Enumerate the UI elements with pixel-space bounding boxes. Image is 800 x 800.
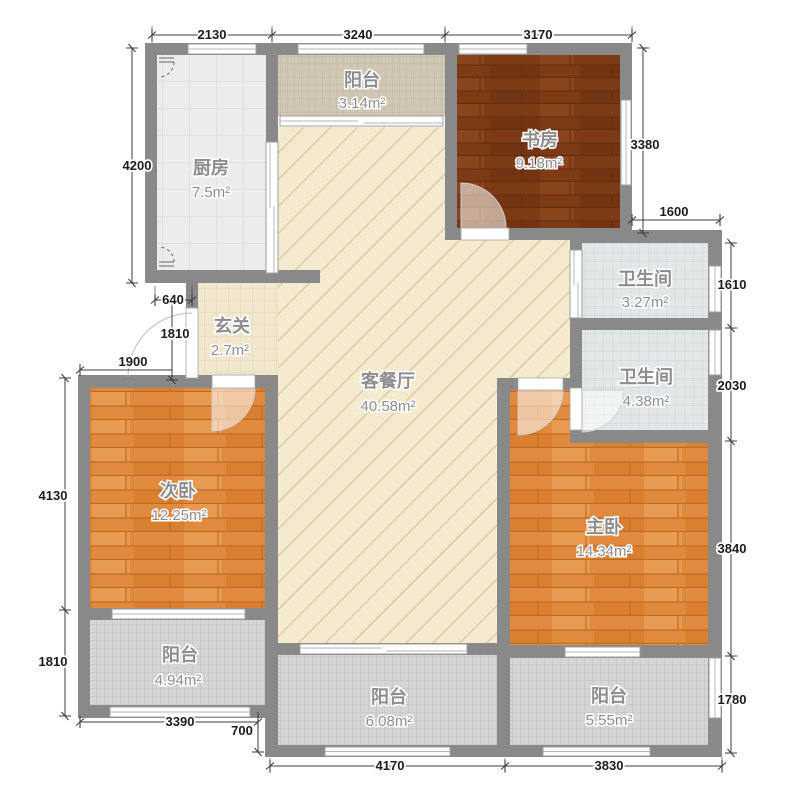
room-label-bathroom-2: 卫生间 (619, 366, 673, 387)
wall-segment (570, 230, 722, 243)
wall-segment (145, 270, 320, 283)
room-area-kitchen: 7.5m² (192, 184, 230, 201)
window (709, 330, 721, 375)
window (112, 609, 245, 619)
room-label-balcony-br: 阳台 (591, 685, 627, 706)
window (621, 100, 631, 185)
dim-left-1: 640 (162, 292, 184, 307)
room-label-living-dining: 客餐厅 (361, 370, 415, 391)
room-area-balcony-bl: 4.94m² (155, 672, 202, 689)
wall-segment (78, 388, 90, 620)
room-area-bathroom-2: 4.38m² (623, 393, 670, 410)
room-area-balcony-bc: 6.08m² (366, 713, 413, 730)
sliding-window (280, 116, 443, 126)
wall-segment (582, 318, 708, 330)
dim-left-0: 4200 (123, 158, 152, 173)
room-area-entrance-hall: 2.7m² (211, 342, 249, 359)
dim-left-5: 1810 (39, 654, 68, 669)
room-label-bathroom-1: 卫生间 (618, 268, 672, 289)
room-area-bedroom-master: 14.34m² (576, 543, 631, 560)
sliding-door (300, 644, 467, 654)
room-area-balcony-br: 5.55m² (586, 712, 633, 729)
window (298, 44, 424, 54)
room-area-bedroom-second: 12.25m² (151, 507, 206, 524)
dim-bottom-3: 3830 (595, 758, 624, 773)
dim-bottom-0: 3390 (166, 714, 195, 729)
floor-plan-svg: 2130 3240 3170 4200 640 1810 1900 4130 1… (0, 0, 800, 800)
window (188, 44, 256, 54)
wall-segment (266, 55, 278, 147)
room-label-balcony-bc: 阳台 (371, 686, 407, 707)
window (459, 44, 527, 54)
sliding-door (266, 142, 278, 273)
dim-right-2: 1610 (718, 277, 747, 292)
dim-right-0: 3380 (631, 137, 660, 152)
room-label-bedroom-master: 主卧 (586, 516, 622, 537)
sliding-door (570, 250, 582, 318)
dim-left-2: 1810 (161, 326, 190, 341)
window (565, 647, 640, 657)
dim-bottom-1: 700 (231, 723, 253, 738)
wall-segment (78, 620, 90, 718)
room-label-bedroom-second: 次卧 (160, 480, 196, 501)
wall-segment (265, 375, 278, 655)
dim-left-3: 1900 (119, 354, 148, 369)
dim-top-1: 3240 (344, 27, 373, 42)
window (709, 658, 721, 718)
room-area-living-dining: 40.58m² (360, 398, 415, 415)
dim-right-3: 2030 (718, 378, 747, 393)
dim-right-5: 1780 (718, 692, 747, 707)
wall-segment (497, 645, 510, 757)
room-label-kitchen: 厨房 (193, 157, 229, 178)
room-area-study: 9.18m² (516, 155, 563, 172)
wall-segment (445, 43, 457, 240)
dim-top-2: 3170 (524, 27, 553, 42)
room-area-balcony-top: 3.14m² (339, 95, 386, 112)
dim-right-4: 3840 (718, 541, 747, 556)
room-label-entrance-hall: 玄关 (214, 315, 250, 336)
room-label-study: 书房 (522, 129, 558, 150)
wall-segment (265, 655, 278, 757)
wall-segment (497, 390, 510, 645)
floor-plan-page: 2130 3240 3170 4200 640 1810 1900 4130 1… (0, 0, 800, 800)
dim-top-0: 2130 (198, 27, 227, 42)
window (325, 747, 450, 756)
dim-right-1: 1600 (660, 204, 689, 219)
room-label-balcony-top: 阳台 (344, 69, 380, 90)
room-label-balcony-bl: 阳台 (162, 644, 198, 665)
dim-left-4: 4130 (39, 488, 68, 503)
room-area-bathroom-1: 3.27m² (622, 294, 669, 311)
window (543, 747, 650, 756)
dim-bottom-2: 4170 (376, 758, 405, 773)
wall-segment (570, 430, 722, 443)
